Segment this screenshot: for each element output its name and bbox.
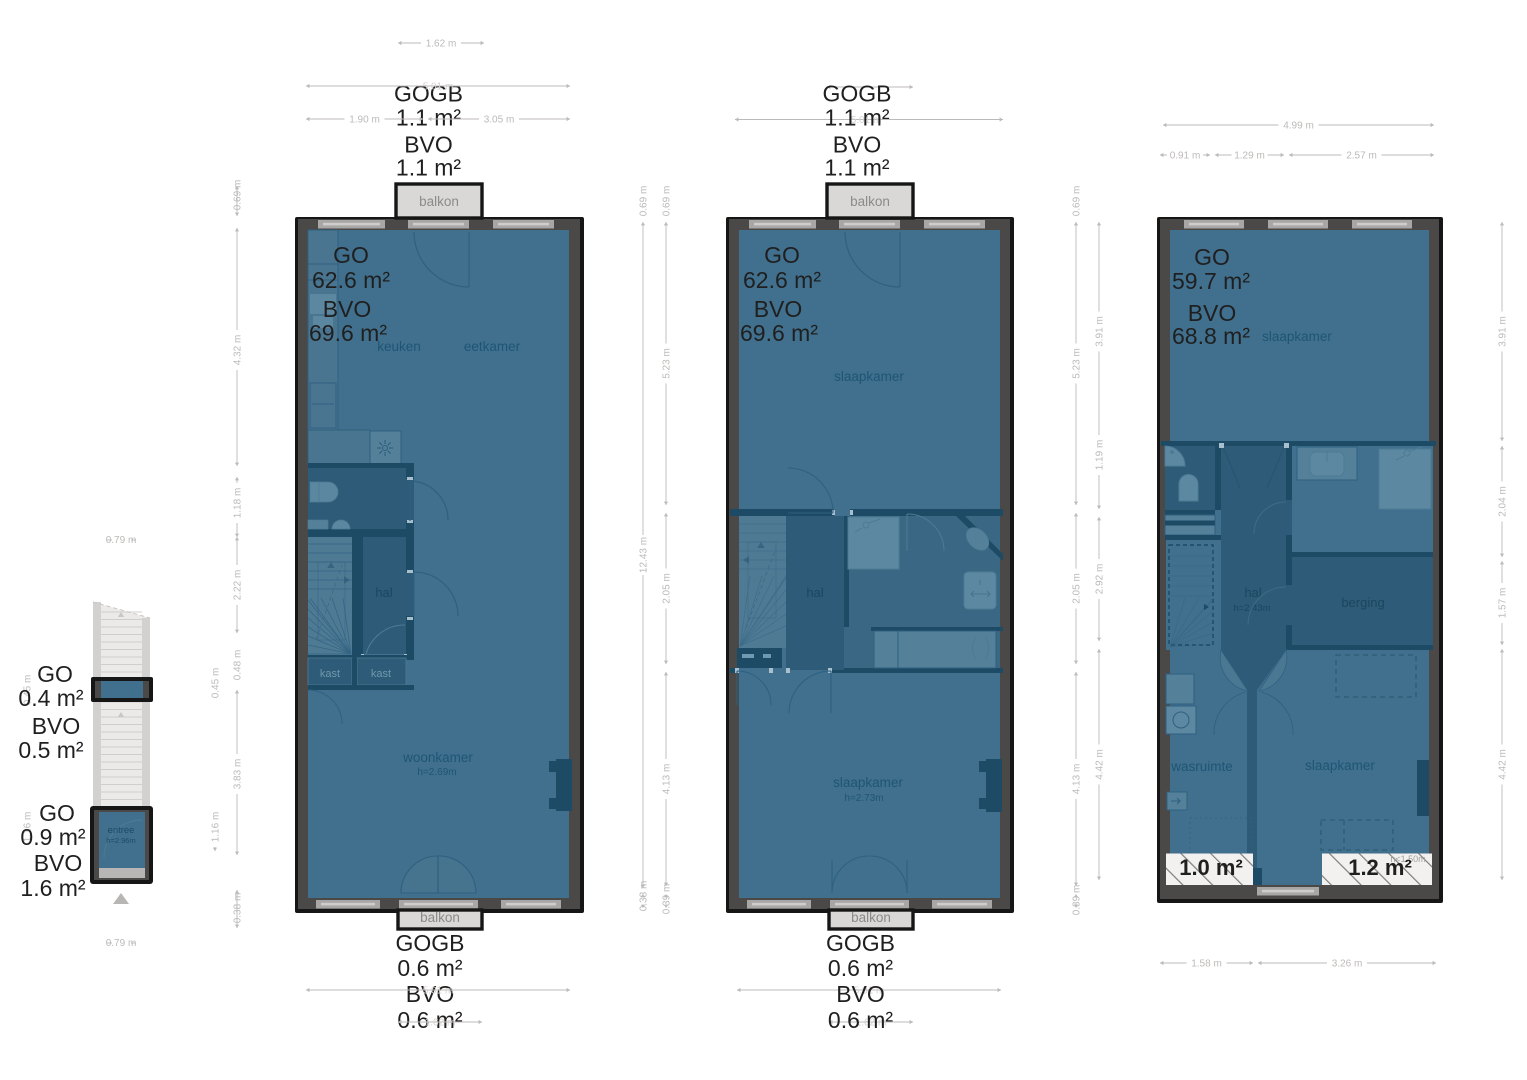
svg-text:1.1 m²: 1.1 m² <box>396 105 462 131</box>
svg-text:2.05 m: 2.05 m <box>661 573 672 604</box>
svg-text:2.05 m: 2.05 m <box>1071 573 1082 604</box>
svg-text:slaapkamer: slaapkamer <box>833 775 903 790</box>
svg-text:balkon: balkon <box>420 910 460 925</box>
svg-text:0.69 m: 0.69 m <box>232 180 243 211</box>
svg-text:5.23 m: 5.23 m <box>1071 348 1082 379</box>
svg-text:kast: kast <box>320 668 340 680</box>
svg-text:1.18 m: 1.18 m <box>232 488 243 519</box>
svg-text:1.16 m: 1.16 m <box>210 812 221 843</box>
svg-text:3.83 m: 3.83 m <box>232 759 243 790</box>
svg-text:5.01 m: 5.01 m <box>423 986 454 997</box>
svg-text:BVO: BVO <box>836 981 885 1007</box>
svg-text:0.38 m: 0.38 m <box>232 893 243 924</box>
svg-text:4.13 m: 4.13 m <box>661 764 672 795</box>
svg-text:0.39 m: 0.39 m <box>1071 885 1082 916</box>
svg-text:GO: GO <box>37 661 73 687</box>
svg-text:2.04 m: 2.04 m <box>1497 486 1508 517</box>
svg-text:0.6 m²: 0.6 m² <box>828 955 894 981</box>
svg-text:hal: hal <box>806 585 823 600</box>
svg-text:0.69 m: 0.69 m <box>638 186 649 217</box>
svg-text:balkon: balkon <box>850 194 890 209</box>
svg-text:GO: GO <box>764 242 800 268</box>
svg-text:1.0 m²: 1.0 m² <box>1179 855 1243 880</box>
svg-text:1.62 m: 1.62 m <box>425 1018 456 1029</box>
svg-text:0.6 m²: 0.6 m² <box>828 1007 894 1033</box>
svg-text:0.39 m: 0.39 m <box>661 884 672 915</box>
svg-text:2.22 m: 2.22 m <box>232 570 243 601</box>
svg-text:12.43 m: 12.43 m <box>638 537 649 573</box>
svg-text:eetkamer: eetkamer <box>464 339 521 354</box>
svg-text:h=2.73m: h=2.73m <box>844 793 883 804</box>
svg-text:4.99 m: 4.99 m <box>1283 120 1314 131</box>
svg-text:1.1 m²: 1.1 m² <box>824 105 890 131</box>
svg-text:1.19 m: 1.19 m <box>1094 440 1105 471</box>
svg-text:0.4 m²: 0.4 m² <box>18 685 84 711</box>
svg-text:0.69 m: 0.69 m <box>661 186 672 217</box>
svg-text:hal: hal <box>375 585 392 600</box>
svg-text:BVO: BVO <box>34 850 83 876</box>
svg-text:berging: berging <box>1341 595 1384 610</box>
svg-text:slaapkamer: slaapkamer <box>1262 329 1332 344</box>
svg-text:1.2 m²: 1.2 m² <box>1348 855 1412 880</box>
svg-text:GOGB: GOGB <box>395 930 464 956</box>
svg-text:0.45 m: 0.45 m <box>210 668 221 699</box>
svg-text:3.05 m: 3.05 m <box>484 114 515 125</box>
svg-text:4.32 m: 4.32 m <box>232 335 243 366</box>
svg-text:62.6 m²: 62.6 m² <box>743 267 821 293</box>
svg-text:h=2.69m: h=2.69m <box>417 767 456 778</box>
svg-text:1.29 m: 1.29 m <box>1234 150 1265 161</box>
svg-text:4.13 m: 4.13 m <box>1071 764 1082 795</box>
svg-text:59.7 m²: 59.7 m² <box>1172 268 1250 294</box>
svg-text:0.69 m: 0.69 m <box>1071 186 1082 217</box>
svg-text:0.48 m: 0.48 m <box>232 650 243 681</box>
svg-text:BVO: BVO <box>32 713 81 739</box>
svg-text:0.6 m²: 0.6 m² <box>397 955 463 981</box>
svg-text:kast: kast <box>371 668 391 680</box>
svg-text:0.91 m: 0.91 m <box>1170 150 1201 161</box>
svg-text:BVO: BVO <box>323 296 372 322</box>
svg-text:69.6 m²: 69.6 m² <box>309 320 387 346</box>
svg-text:entree: entree <box>108 825 135 836</box>
svg-text:4.42 m: 4.42 m <box>1497 749 1508 780</box>
svg-text:0.5 m²: 0.5 m² <box>18 737 84 763</box>
svg-text:4.42 m: 4.42 m <box>1094 749 1105 780</box>
svg-text:GO: GO <box>1194 244 1230 270</box>
svg-text:1.58 m: 1.58 m <box>1191 958 1222 969</box>
svg-text:slaapkamer: slaapkamer <box>1305 758 1375 773</box>
svg-text:1.1 m²: 1.1 m² <box>824 155 890 181</box>
svg-text:1.1 m²: 1.1 m² <box>396 155 462 181</box>
svg-text:h=2.96m: h=2.96m <box>106 836 135 845</box>
svg-text:balkon: balkon <box>419 194 459 209</box>
svg-text:1.6 m²: 1.6 m² <box>20 875 86 901</box>
svg-text:0.9 m²: 0.9 m² <box>20 824 86 850</box>
svg-text:woonkamer: woonkamer <box>402 750 473 765</box>
svg-text:balkon: balkon <box>851 910 891 925</box>
svg-text:3.91 m: 3.91 m <box>1094 316 1105 347</box>
svg-text:GO: GO <box>333 242 369 268</box>
svg-text:2.57 m: 2.57 m <box>1346 150 1377 161</box>
svg-text:5.23 m: 5.23 m <box>661 348 672 379</box>
svg-text:GOGB: GOGB <box>826 930 895 956</box>
svg-text:68.8 m²: 68.8 m² <box>1172 323 1250 349</box>
svg-text:62.6 m²: 62.6 m² <box>312 267 390 293</box>
svg-text:wasruimte: wasruimte <box>1170 759 1233 774</box>
svg-text:1.57 m: 1.57 m <box>1497 588 1508 619</box>
svg-text:5.01 m: 5.01 m <box>423 82 454 93</box>
svg-text:1.62 m: 1.62 m <box>426 38 457 49</box>
svg-text:slaapkamer: slaapkamer <box>834 369 904 384</box>
svg-text:3.91 m: 3.91 m <box>1497 316 1508 347</box>
svg-text:3.26 m: 3.26 m <box>1332 958 1363 969</box>
svg-text:0.79 m: 0.79 m <box>106 535 137 546</box>
svg-text:GO: GO <box>39 800 75 826</box>
svg-text:2.92 m: 2.92 m <box>1094 564 1105 595</box>
svg-text:0.79 m: 0.79 m <box>106 938 137 949</box>
svg-text:BVO: BVO <box>754 296 803 322</box>
svg-text:1.90 m: 1.90 m <box>349 114 380 125</box>
svg-text:69.6 m²: 69.6 m² <box>740 320 818 346</box>
svg-text:GOGB: GOGB <box>822 81 891 107</box>
